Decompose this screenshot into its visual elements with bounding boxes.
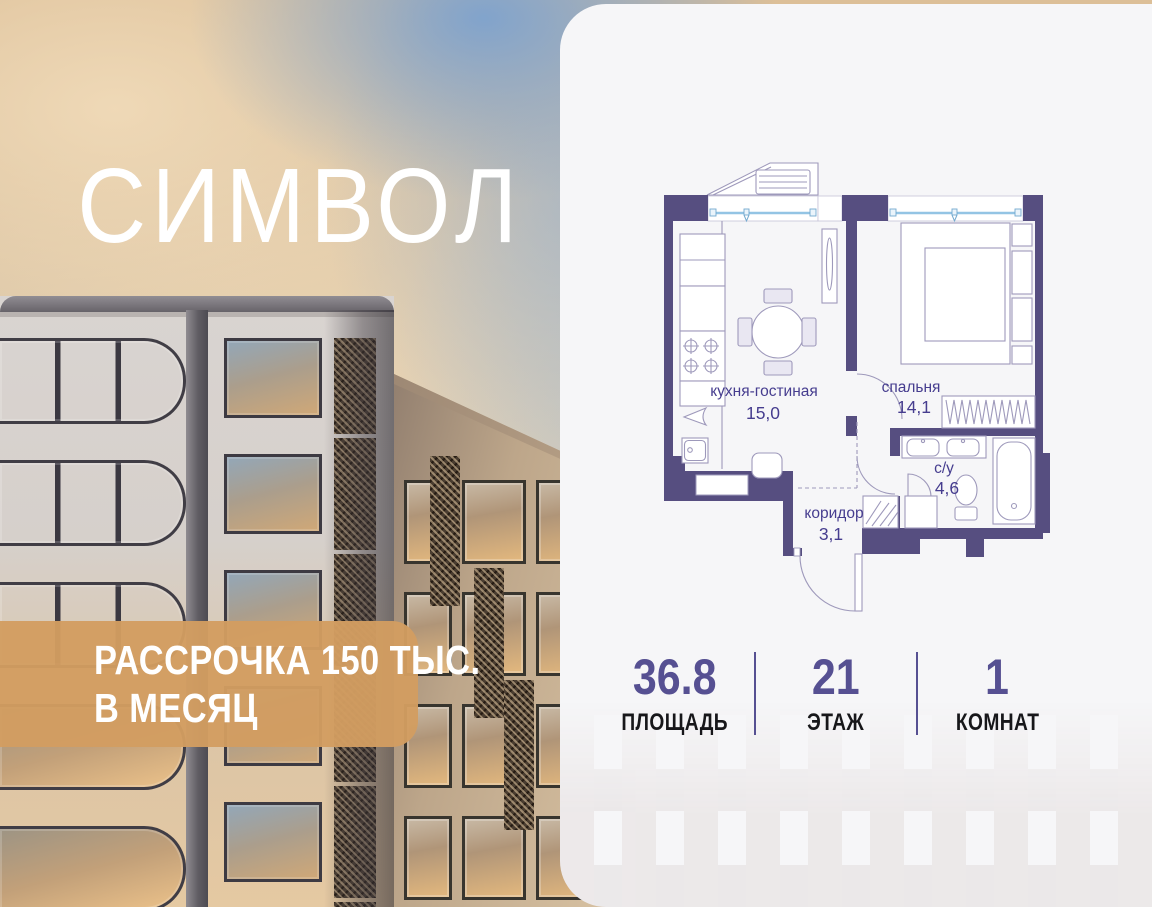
promo-line-1: РАССРОЧКА 150 ТЫС. — [94, 636, 366, 684]
stat-area: 36.8 ПЛОЩАДЬ — [595, 652, 754, 735]
kitchen-furniture — [680, 221, 837, 478]
facade-window — [0, 460, 186, 546]
stat-area-value: 36.8 — [633, 652, 717, 702]
facade-window — [0, 338, 186, 424]
room-area-bedroom: 14,1 — [897, 397, 931, 417]
stat-rooms: 1 КОМНАТ — [918, 652, 1077, 735]
stats-row: 36.8 ПЛОЩАДЬ 21 ЭТАЖ 1 КОМНАТ — [595, 652, 1077, 735]
doors — [798, 374, 902, 611]
shadow-flank — [324, 310, 394, 907]
floor-plan: кухня-гостиная 15,0 спальня 14,1 с/у 4,6… — [660, 156, 1050, 614]
stat-floor-label: ЭТАЖ — [772, 711, 899, 735]
room-area-kitchen: 15,0 — [746, 403, 780, 423]
facade-seam — [186, 310, 208, 907]
facade-window — [462, 480, 526, 564]
room-label-kitchen: кухня-гостиная — [710, 383, 818, 400]
room-area-hallway: 3,1 — [819, 524, 843, 544]
facade-window — [224, 338, 322, 418]
door-jamb — [794, 548, 800, 556]
facade-window — [0, 826, 186, 907]
promo-line-2: В МЕСЯЦ — [94, 684, 366, 732]
info-panel: кухня-гостиная 15,0 спальня 14,1 с/у 4,6… — [560, 4, 1152, 907]
left-tower — [0, 296, 394, 907]
stat-rooms-value: 1 — [985, 652, 1009, 702]
room-label-hallway: коридор — [804, 505, 863, 522]
facade-window — [224, 802, 322, 882]
room-label-bedroom: спальня — [882, 379, 941, 396]
room-area-bathroom: 4,6 — [935, 478, 959, 498]
balcony — [707, 163, 818, 195]
mosaic-pier — [504, 680, 534, 830]
stat-floor-value: 21 — [812, 652, 860, 702]
stat-rooms-label: КОМНАТ — [934, 711, 1061, 735]
room-label-bathroom: с/у — [934, 460, 954, 477]
project-logo: СИМВОЛ — [48, 146, 552, 267]
mosaic-pier — [430, 456, 460, 606]
listing-card: СИМВОЛ РАССРОЧКА 150 ТЫС. В МЕСЯЦ — [0, 0, 1152, 907]
stat-area-label: ПЛОЩАДЬ — [611, 711, 738, 735]
facade-window — [404, 816, 452, 900]
wall-niche — [696, 475, 748, 495]
promo-banner: РАССРОЧКА 150 ТЫС. В МЕСЯЦ — [0, 621, 418, 747]
facade-window — [224, 454, 322, 534]
stat-floor: 21 ЭТАЖ — [756, 652, 915, 735]
